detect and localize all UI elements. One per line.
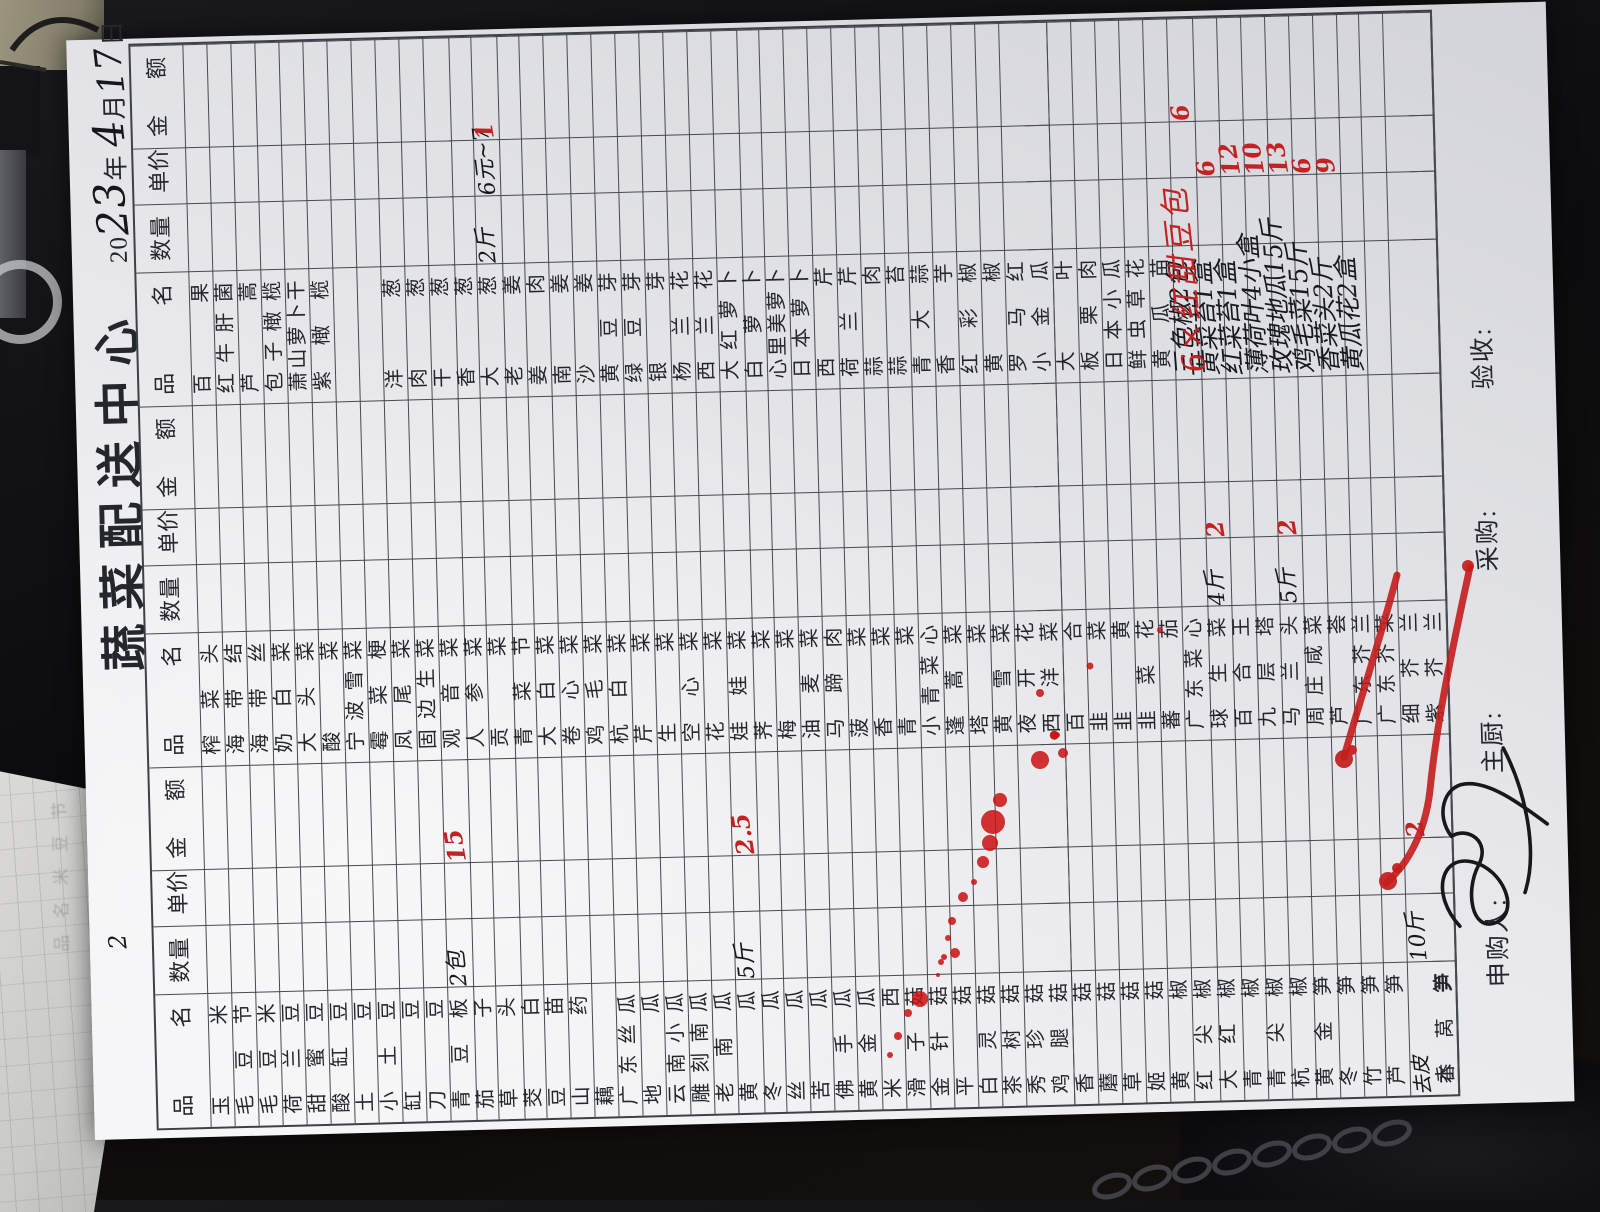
quantity-cell [954, 183, 981, 252]
unit-price-cell [386, 502, 412, 559]
printed-item-name: 蒜苔 [884, 253, 911, 387]
printed-item-name: 蘑菇 [1095, 970, 1122, 1104]
unit-price-cell [506, 499, 532, 556]
item-name-cell: 水笋 [1431, 960, 1459, 1095]
printed-item-name: 冬瓜 [759, 979, 786, 1113]
quantity-cell [796, 548, 823, 617]
quantity-cell [1026, 181, 1053, 250]
unit-price-cell [746, 493, 772, 550]
printed-item-name: 百合 [1061, 610, 1088, 744]
unit-price-cell [612, 858, 638, 915]
amount-cell [1406, 12, 1434, 116]
unit-price-cell [300, 866, 326, 923]
unit-price-cell [756, 854, 782, 911]
printed-item-name: 青豆板 [447, 987, 474, 1121]
unit-price-cell [689, 133, 715, 190]
printed-item-name: 小土豆 [375, 989, 402, 1123]
date-year-label: 年 [103, 154, 131, 181]
printed-item-name: 酸缸豆 [327, 990, 354, 1124]
quantity-cell [292, 561, 319, 630]
unit-price-cell [780, 853, 806, 910]
printed-item-name: 韭菜 [1085, 609, 1112, 743]
handwritten-prefix: 去皮 [1408, 1054, 1436, 1096]
unit-price-cell [593, 136, 619, 193]
printed-item-name: 红尖椒 [1191, 968, 1218, 1102]
quantity-cell [858, 185, 885, 254]
quantity-cell [1338, 172, 1365, 241]
printed-item-name: 周庄咸菜 [1301, 604, 1328, 738]
quantity-cell [1348, 533, 1375, 602]
printed-item-name: 日本萝卜 [788, 256, 815, 390]
handwritten-quantity: 10斤 [1403, 910, 1433, 962]
desk-ring-mark [0, 260, 62, 344]
unit-price-cell [1130, 483, 1156, 540]
printed-item-name: 黄雪菜 [989, 612, 1016, 746]
unit-price-cell [185, 147, 211, 204]
unit-price-cell [564, 859, 590, 916]
printed-item-name: 沙姜 [572, 262, 599, 396]
unit-price-cell [1140, 844, 1166, 901]
purchaser-label: 采购: [1467, 508, 1505, 572]
quantity-cell [316, 560, 343, 629]
red-handwritten-amount: 2 [1402, 819, 1428, 839]
quantity-cell [973, 904, 1000, 973]
unit-price-cell [698, 494, 724, 551]
unit-price-cell [1092, 845, 1118, 902]
printed-item-name: 茭白 [519, 985, 546, 1119]
red-handwritten-price: 9 [1313, 155, 1339, 175]
printed-item-name: 毛豆米 [255, 992, 282, 1126]
quantity-cell [834, 186, 861, 255]
quantity-cell [258, 201, 285, 270]
unit-price-cell [362, 503, 388, 560]
printed-item-name: 西兰花 [692, 258, 719, 392]
printed-item-name: 大头菜 [294, 630, 321, 764]
printed-item-name: 银芽 [644, 260, 671, 394]
quantity-cell [412, 558, 439, 627]
printed-item-name: 观音菜 [438, 626, 465, 760]
quantity-cell [868, 546, 895, 615]
quantity-cell [220, 563, 247, 632]
header-amount-3: 金 额 [130, 44, 186, 148]
quantity-cell [940, 544, 967, 613]
printed-item-name: 广东丝瓜 [615, 983, 642, 1117]
printed-item-name: 平菇 [951, 974, 978, 1108]
unit-price-cell [276, 867, 302, 924]
date-day-label: 日 [100, 19, 128, 46]
printed-item-name: 霉菜梗 [366, 628, 393, 762]
date-day-handwritten: 17 [87, 44, 133, 96]
printed-item-name: 水笋 [1431, 961, 1458, 1095]
unit-price-cell [338, 504, 364, 561]
printed-item-name: 青椒 [1239, 966, 1266, 1100]
quantity-cell [892, 545, 919, 614]
unit-price-cell [602, 497, 628, 554]
printed-item-name: 南姜 [548, 262, 575, 396]
quantity-cell [546, 193, 573, 262]
printed-item-name: 大叶 [1052, 249, 1079, 383]
quantity-cell [378, 198, 405, 267]
printed-item-name: 芦荟 [1325, 603, 1352, 737]
printed-item-name: 板栗肉 [1076, 248, 1103, 382]
quantity-cell [580, 553, 607, 622]
printed-item-name: 香菇 [1071, 971, 1098, 1105]
printed-item-name: 茶树菇 [999, 973, 1026, 1107]
printed-item-name: 百合王 [1229, 605, 1256, 739]
quantity-cell [1410, 171, 1437, 240]
quantity-cell [637, 913, 664, 982]
unit-price-cell [545, 137, 571, 194]
unit-price-cell [866, 490, 892, 547]
quantity-cell [738, 188, 765, 257]
unit-price-cell [809, 130, 835, 187]
unit-price-cell [588, 858, 614, 915]
printed-item-name: 广东芥菜 [1373, 602, 1400, 736]
unit-price-cell [1346, 477, 1372, 534]
printed-item-name: 大红萝卜 [716, 258, 743, 392]
unit-price-cell [1049, 124, 1075, 181]
printed-item-name: 杭白菜 [606, 622, 633, 756]
quantity-cell [1084, 540, 1111, 609]
printed-item-name: 凤尾菜 [390, 627, 417, 761]
printed-item-name: 九层塔 [1253, 605, 1280, 739]
quantity-cell [469, 917, 496, 986]
date-month-label: 月 [102, 93, 130, 120]
unit-price-cell [876, 851, 902, 908]
unit-price-cell [665, 134, 691, 191]
handwritten-quantity: 2斤 [474, 226, 502, 264]
unit-price-cell [684, 856, 710, 913]
quantity-cell [508, 555, 535, 624]
quantity-cell [205, 924, 232, 993]
unit-price-cell [305, 144, 331, 201]
printed-item-name: 山药 [567, 984, 594, 1118]
header-qty-3: 数量 [135, 203, 190, 272]
unit-price-cell [1106, 484, 1132, 541]
unit-price-cell [228, 868, 254, 925]
unit-price-cell [674, 495, 700, 552]
printed-item-name: 荷兰芹 [836, 255, 863, 389]
printed-item-name: 西芹 [812, 255, 839, 389]
header-price-3: 单价 [133, 147, 187, 204]
unit-price-cell [938, 488, 964, 545]
printed-item-name: 香葱 [452, 265, 479, 399]
printed-item-name: 草菇 [1119, 970, 1146, 1104]
printed-item-name: 缸豆 [399, 988, 426, 1122]
printed-item-name: 广东菜心 [1181, 607, 1208, 741]
printed-item-name: 菠菜 [846, 616, 873, 750]
printed-item-name: 草头 [495, 986, 522, 1120]
quantity-cell [618, 191, 645, 260]
printed-item-name: 球生菜 [1205, 606, 1232, 740]
printed-item-name: 白灵菇 [975, 973, 1002, 1107]
printed-item-name: 毛豆节 [231, 993, 258, 1127]
quantity-cell [949, 905, 976, 974]
printed-item-name: 娃娃菜 [726, 619, 753, 753]
printed-item-name: 黄椒 [1167, 968, 1194, 1102]
printed-item-name: 青尖椒 [1263, 966, 1290, 1100]
quantity-cell [820, 547, 847, 616]
unit-price-cell [794, 492, 820, 549]
unit-price-cell [770, 492, 796, 549]
printed-item-name: 油麦菜 [798, 617, 825, 751]
unit-price-cell [828, 852, 854, 909]
quantity-cell [901, 906, 928, 975]
printed-item-name: 马兰头 [1277, 604, 1304, 738]
unit-price-cell [1337, 116, 1363, 173]
red-handwritten-price: 2 [1274, 517, 1300, 537]
unit-price-cell [914, 489, 940, 546]
unit-price-cell [1356, 838, 1382, 895]
unit-price-cell [348, 865, 374, 922]
quantity-cell [522, 194, 549, 263]
unit-price-cell [833, 130, 859, 187]
printed-item-name: 心里美萝卜 [764, 257, 791, 391]
quantity-cell [556, 554, 583, 623]
unit-price-cell [953, 127, 979, 184]
quantity-cell [882, 184, 909, 253]
unit-price-cell [1154, 482, 1180, 539]
printed-item-name: 老姜 [500, 263, 527, 397]
printed-item-name: 大葱 [476, 264, 503, 398]
printed-item-name: 青大蒜 [908, 253, 935, 387]
quantity-cell [1117, 901, 1144, 970]
printed-item-name: 黄豆芽 [596, 261, 623, 395]
unit-price-cell [737, 132, 763, 189]
quantity-cell [1093, 901, 1120, 970]
quantity-cell [1372, 533, 1399, 602]
unit-price-cell [458, 501, 484, 558]
quantity-cell [805, 909, 832, 978]
printed-item-name: 宁波雪菜 [342, 629, 369, 763]
printed-item-name: 绿豆芽 [620, 260, 647, 394]
header-amount-2: 金 额 [140, 405, 196, 509]
unit-price-cell [804, 853, 830, 910]
printed-item-name: 玉米 [207, 993, 234, 1127]
unit-price-cell [324, 865, 350, 922]
quantity-cell [997, 904, 1024, 973]
header-price-1: 单价 [152, 869, 206, 926]
unit-price-cell [641, 135, 667, 192]
quantity-cell [277, 922, 304, 991]
printed-item-name: 苦瓜 [807, 978, 834, 1112]
header-qty-1: 数量 [153, 925, 208, 994]
unit-price-cell [540, 860, 566, 917]
unit-price-cell [1370, 477, 1396, 534]
unit-price-cell [1164, 843, 1190, 900]
printed-item-name: 丝瓜 [783, 978, 810, 1112]
printed-item-name: 洋葱 [380, 267, 407, 401]
quantity-cell [325, 921, 352, 990]
unit-price-cell [1082, 484, 1108, 541]
printed-item-name: 荠菜 [750, 618, 777, 752]
quantity-cell [330, 199, 357, 268]
printed-item-name: 姜肉 [524, 263, 551, 397]
printed-item-name: 香芋 [932, 252, 959, 386]
quantity-cell [1108, 540, 1135, 609]
quantity-cell [1045, 902, 1072, 971]
item-name-cell: 紫芥兰 [1421, 599, 1449, 734]
printed-item-name: 大红椒 [1215, 967, 1242, 1101]
quantity-cell [604, 553, 631, 622]
unit-price-cell [410, 502, 436, 559]
quantity-cell [1098, 179, 1125, 248]
printed-item-name: 马蹄肉 [822, 616, 849, 750]
unit-price-cell [1058, 485, 1084, 542]
printed-item-name: 地瓜 [639, 982, 666, 1116]
printed-item-name: 生菜 [654, 621, 681, 755]
printed-item-name: 韭黄 [1109, 609, 1136, 743]
quantity-cell [253, 923, 280, 992]
red-handwritten-amount: 15 [441, 827, 470, 864]
quantity-cell [829, 908, 856, 977]
date-month-handwritten: 4 [83, 117, 135, 150]
quantity-cell [268, 562, 295, 631]
unit-price-cell [266, 506, 292, 563]
red-handwritten-price: 2 [1202, 519, 1228, 539]
printed-item-name: 固边生菜 [414, 627, 441, 761]
quantity-cell [748, 549, 775, 618]
handwritten-quantity: 2包 [445, 949, 473, 987]
unit-price-cell [818, 491, 844, 548]
printed-item-name: 雕刻南瓜 [687, 981, 714, 1115]
printed-item-name: 芦蒿 [236, 270, 263, 404]
unit-price-cell [290, 505, 316, 562]
unit-price-cell [890, 489, 916, 546]
printed-item-name: 小青菜心 [918, 614, 945, 748]
unit-price-cell [1380, 838, 1406, 895]
printed-item-name: 塔菜 [966, 612, 993, 746]
printed-item-name: 蕃茄 [1157, 607, 1184, 741]
order-table: 品 名 数量 单价 金 额 品 名 数量 单价 金 额 品 名 数量 单价 金 … [128, 10, 1460, 1131]
unit-price-cell [1409, 115, 1435, 172]
printed-item-name: 黄瓜 [735, 980, 762, 1114]
unit-price-cell [1116, 845, 1142, 902]
handwritten-item-name: 黄瓜花2盒 [1333, 256, 1366, 373]
quantity-cell [1122, 178, 1149, 247]
handwritten-quantity: 4斤 [1203, 568, 1231, 606]
unit-price-cell [521, 138, 547, 195]
quantity-cell [930, 183, 957, 252]
unit-price-cell [977, 126, 1003, 183]
printed-item-name: 黄金瓜 [855, 976, 882, 1110]
quantity-cell [1074, 179, 1101, 248]
printed-item-name: 佛手瓜 [831, 977, 858, 1111]
quantity-cell [685, 912, 712, 981]
printed-item-name: 芹菜 [630, 621, 657, 755]
quantity-cell [460, 557, 487, 626]
unit-price-cell [948, 849, 974, 906]
unit-price-cell [900, 850, 926, 907]
unit-price-cell [218, 507, 244, 564]
unit-price-cell [257, 145, 283, 202]
quantity-cell [1036, 542, 1063, 611]
quantity-cell [762, 188, 789, 257]
printed-item-name: 百果 [188, 272, 215, 406]
printed-item-name: 广东芥兰 [1349, 602, 1376, 736]
quantity-cell [498, 194, 525, 263]
unit-price-cell [1145, 122, 1171, 179]
printed-item-name: 云南小瓜 [663, 981, 690, 1115]
unit-price-cell [924, 850, 950, 907]
unit-price-cell [420, 863, 446, 920]
unit-price-cell [530, 499, 556, 556]
printed-item-name: 鸡毛菜 [582, 622, 609, 756]
printed-item-name: 夜开花 [1013, 611, 1040, 745]
quantity-cell [306, 199, 333, 268]
printed-item-name: 日本小瓜 [1100, 248, 1127, 382]
red-handwritten-amount: 2.5 [728, 811, 759, 856]
unit-price-cell [1025, 125, 1051, 182]
header-qty-2: 数量 [144, 564, 199, 633]
quantity-cell [906, 184, 933, 253]
printed-item-name: 藕 [591, 983, 618, 1117]
unit-price-cell [377, 142, 403, 199]
unit-price-cell [636, 857, 662, 914]
unit-price-cell [204, 868, 230, 925]
printed-item-name: 细芥兰 [1397, 601, 1424, 735]
printed-item-name: 荷兰豆 [279, 991, 306, 1125]
unit-price-cell [852, 851, 878, 908]
quantity-cell [234, 201, 261, 270]
header-name-1: 品 名 [155, 993, 211, 1128]
date-printed-prefix: 20 [105, 236, 133, 264]
quantity-cell [661, 912, 688, 981]
printed-item-name: 花菜 [702, 619, 729, 753]
printed-item-name: 滑子菇 [903, 975, 930, 1109]
quantity-cell [211, 202, 238, 271]
quantity-cell [589, 914, 616, 983]
quantity-cell [1069, 902, 1096, 971]
quantity-cell [1362, 172, 1389, 241]
quantity-cell [786, 187, 813, 256]
header-name-2: 品 名 [146, 632, 202, 767]
unit-price-cell [650, 496, 676, 553]
unit-price-cell [242, 506, 268, 563]
quantity-cell [1156, 538, 1183, 607]
quantity-cell [676, 551, 703, 620]
printed-item-name: 蒜肉 [860, 254, 887, 388]
unit-price-cell [1418, 475, 1444, 532]
quantity-cell [1141, 900, 1168, 969]
printed-item-name: 人参菜 [462, 626, 489, 760]
quantity-cell [517, 916, 544, 985]
unit-price-cell [233, 145, 259, 202]
unit-price-cell [281, 144, 307, 201]
quantity-cell [301, 922, 328, 991]
printed-item-name: 包子橄榄 [260, 270, 287, 404]
printed-item-name: 秀珍菇 [1023, 972, 1050, 1106]
header-name-3: 品 名 [136, 271, 192, 406]
quantity-cell [964, 543, 991, 612]
printed-item-name: 大白菜 [534, 624, 561, 758]
quantity-cell [570, 193, 597, 262]
unit-price-cell [857, 129, 883, 186]
quantity-cell [282, 200, 309, 269]
quantity-cell [244, 562, 271, 631]
quantity-cell [1165, 899, 1192, 968]
quantity-cell [397, 919, 424, 988]
printed-item-name: 青菜 [894, 614, 921, 748]
printed-item-name: 老南瓜 [711, 980, 738, 1114]
unit-price-cell [972, 848, 998, 905]
quantity-cell [1420, 531, 1447, 600]
printed-item-name: 土豆 [351, 990, 378, 1124]
quantity-cell [1357, 894, 1384, 963]
quantity-cell [349, 921, 376, 990]
unit-price-cell [497, 138, 523, 195]
quantity-cell [354, 198, 381, 267]
